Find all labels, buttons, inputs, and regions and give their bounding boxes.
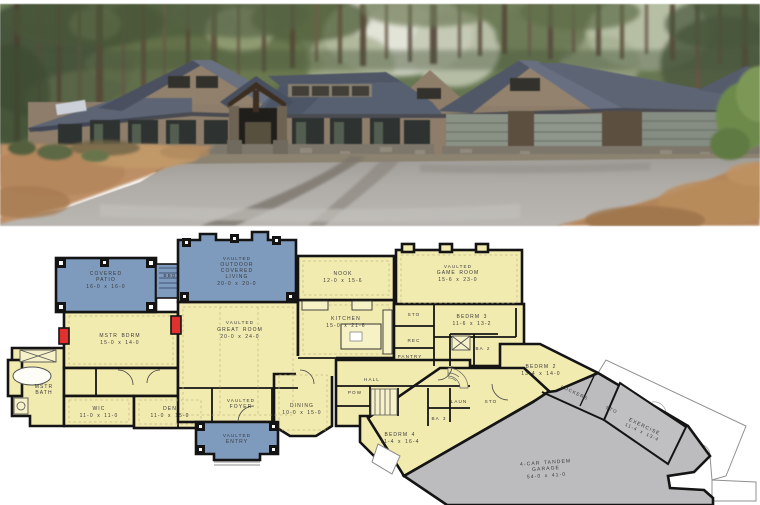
svg-text:BATH: BATH <box>35 390 52 396</box>
svg-text:20-0 x 20-0: 20-0 x 20-0 <box>217 281 256 287</box>
svg-text:VAULTED: VAULTED <box>227 398 255 403</box>
svg-text:15-0 x 21-6: 15-0 x 21-6 <box>326 323 365 329</box>
svg-text:13-4 x 14-0: 13-4 x 14-0 <box>521 371 560 377</box>
svg-text:BEDRM 3: BEDRM 3 <box>457 314 488 320</box>
svg-text:11-6 x 13-2: 11-6 x 13-2 <box>452 321 491 327</box>
svg-text:FOYER: FOYER <box>230 404 253 410</box>
svg-text:DEN: DEN <box>163 406 177 412</box>
svg-text:VAULTED: VAULTED <box>444 264 472 269</box>
svg-text:NOOK: NOOK <box>333 271 352 277</box>
svg-text:11-0 x 11-0: 11-0 x 11-0 <box>80 413 119 419</box>
svg-text:ENTRY: ENTRY <box>226 439 248 445</box>
svg-text:GREAT ROOM: GREAT ROOM <box>217 327 263 333</box>
svg-text:12-0 x 15-6: 12-0 x 15-6 <box>323 278 362 284</box>
svg-text:MSTR BDRM: MSTR BDRM <box>99 333 140 339</box>
svg-text:16-0 x 16-0: 16-0 x 16-0 <box>86 284 125 290</box>
svg-text:BA 3: BA 3 <box>431 416 446 421</box>
svg-text:15-6 x 23-0: 15-6 x 23-0 <box>438 277 477 283</box>
svg-text:15-0 x 14-0: 15-0 x 14-0 <box>100 340 139 346</box>
svg-text:LAUN: LAUN <box>451 399 468 404</box>
svg-text:STO: STO <box>485 399 498 404</box>
svg-text:PANTRY: PANTRY <box>398 354 423 359</box>
svg-text:VAULTED: VAULTED <box>223 433 251 438</box>
svg-text:REC: REC <box>408 338 421 343</box>
svg-text:WIC: WIC <box>92 406 105 412</box>
svg-text:KITCHEN: KITCHEN <box>331 316 361 322</box>
svg-text:VAULTED: VAULTED <box>226 320 254 325</box>
svg-text:HALL: HALL <box>364 377 380 382</box>
svg-text:POW: POW <box>348 390 362 395</box>
svg-text:BBQ: BBQ <box>163 273 176 278</box>
svg-text:11-4 x 16-4: 11-4 x 16-4 <box>380 439 419 445</box>
svg-text:20-0 x 24-0: 20-0 x 24-0 <box>220 334 259 340</box>
svg-text:11-0 x 15-0: 11-0 x 15-0 <box>150 413 189 419</box>
svg-text:GAME ROOM: GAME ROOM <box>437 270 480 276</box>
svg-text:10-0 x 15-0: 10-0 x 15-0 <box>282 410 321 416</box>
svg-text:STO: STO <box>408 312 421 317</box>
svg-text:BEDRM 4: BEDRM 4 <box>385 432 416 438</box>
svg-text:LIVING: LIVING <box>226 274 249 280</box>
svg-text:DINING: DINING <box>290 403 314 409</box>
svg-text:VAULTED: VAULTED <box>223 256 251 261</box>
svg-text:PATIO: PATIO <box>96 277 116 283</box>
svg-text:BEDRM 2: BEDRM 2 <box>526 364 557 370</box>
svg-text:BA 2: BA 2 <box>475 346 490 351</box>
